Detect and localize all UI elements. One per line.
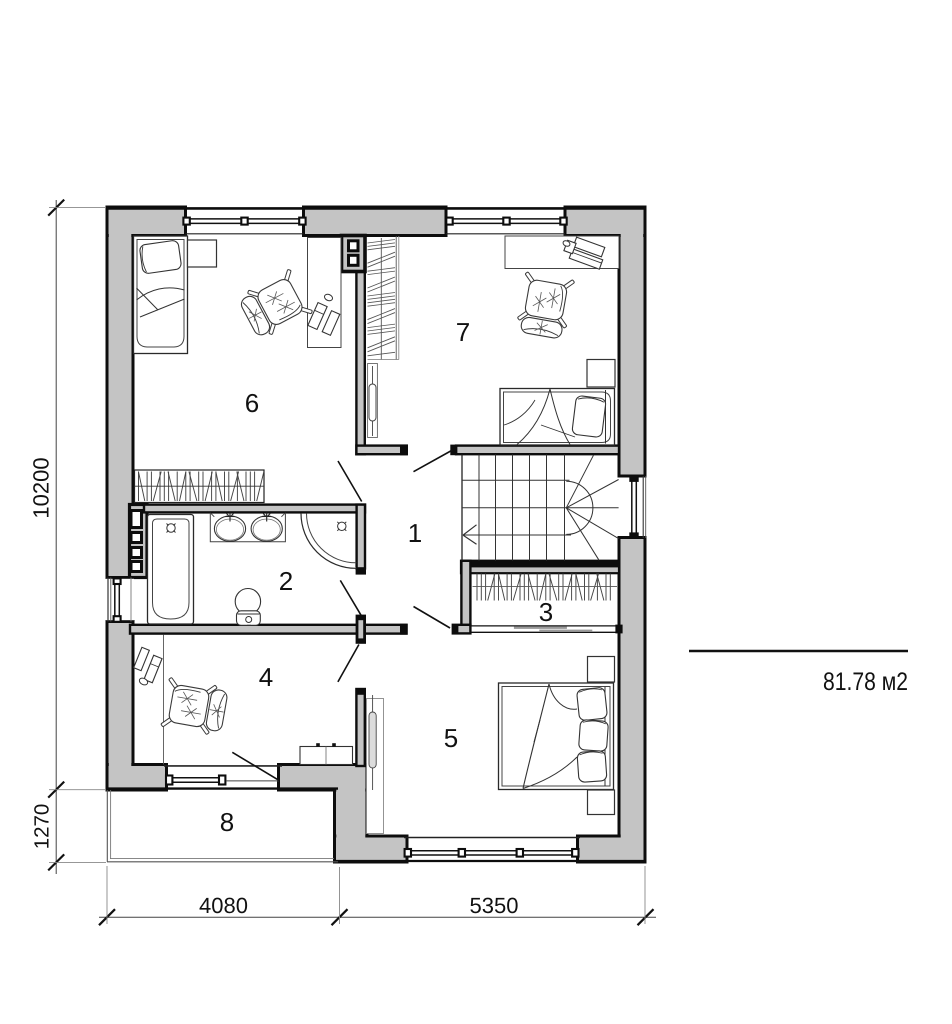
svg-text:3: 3 [539,597,553,627]
svg-text:10200: 10200 [29,457,54,518]
svg-text:4080: 4080 [199,893,248,918]
svg-text:1: 1 [408,518,422,548]
svg-text:81.78 м2: 81.78 м2 [823,668,908,696]
svg-text:1270: 1270 [31,804,54,850]
svg-text:7: 7 [456,317,470,347]
svg-text:5350: 5350 [470,893,519,918]
svg-text:5: 5 [444,723,458,753]
svg-text:2: 2 [279,566,293,596]
svg-text:4: 4 [259,662,273,692]
svg-text:6: 6 [245,388,259,418]
svg-text:8: 8 [220,807,234,837]
